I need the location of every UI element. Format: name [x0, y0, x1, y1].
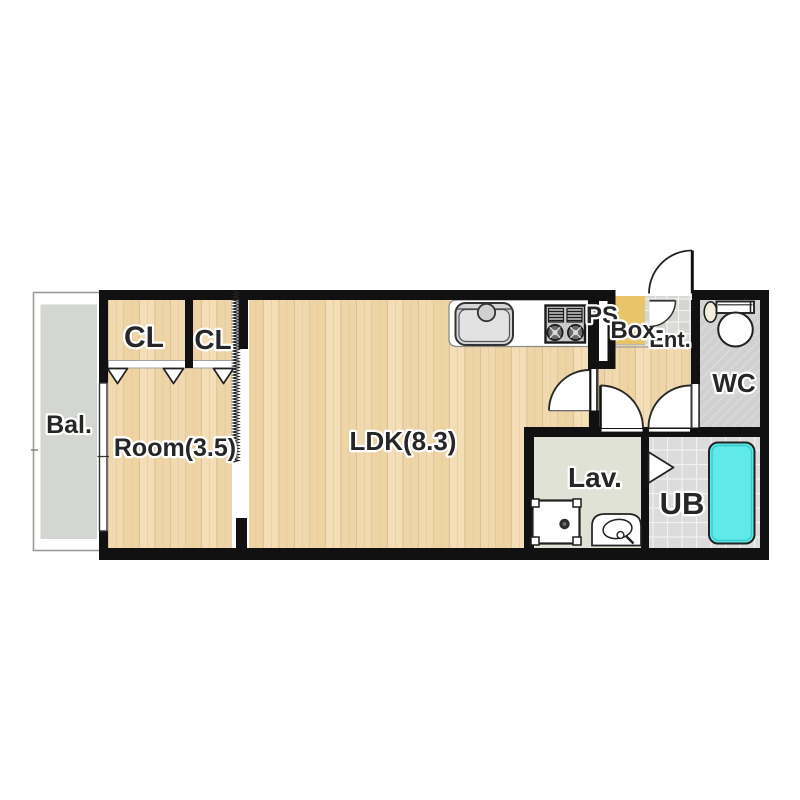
svg-text:CL: CL: [124, 321, 164, 354]
svg-text:CL: CL: [194, 324, 231, 355]
svg-text:Bal.: Bal.: [46, 411, 92, 439]
svg-text:Lav.: Lav.: [568, 462, 622, 493]
svg-text:Room(3.5): Room(3.5): [114, 434, 236, 462]
svg-text:WC: WC: [712, 368, 756, 398]
svg-text:UB: UB: [660, 486, 705, 521]
svg-text:LDK(8.3): LDK(8.3): [350, 426, 457, 456]
